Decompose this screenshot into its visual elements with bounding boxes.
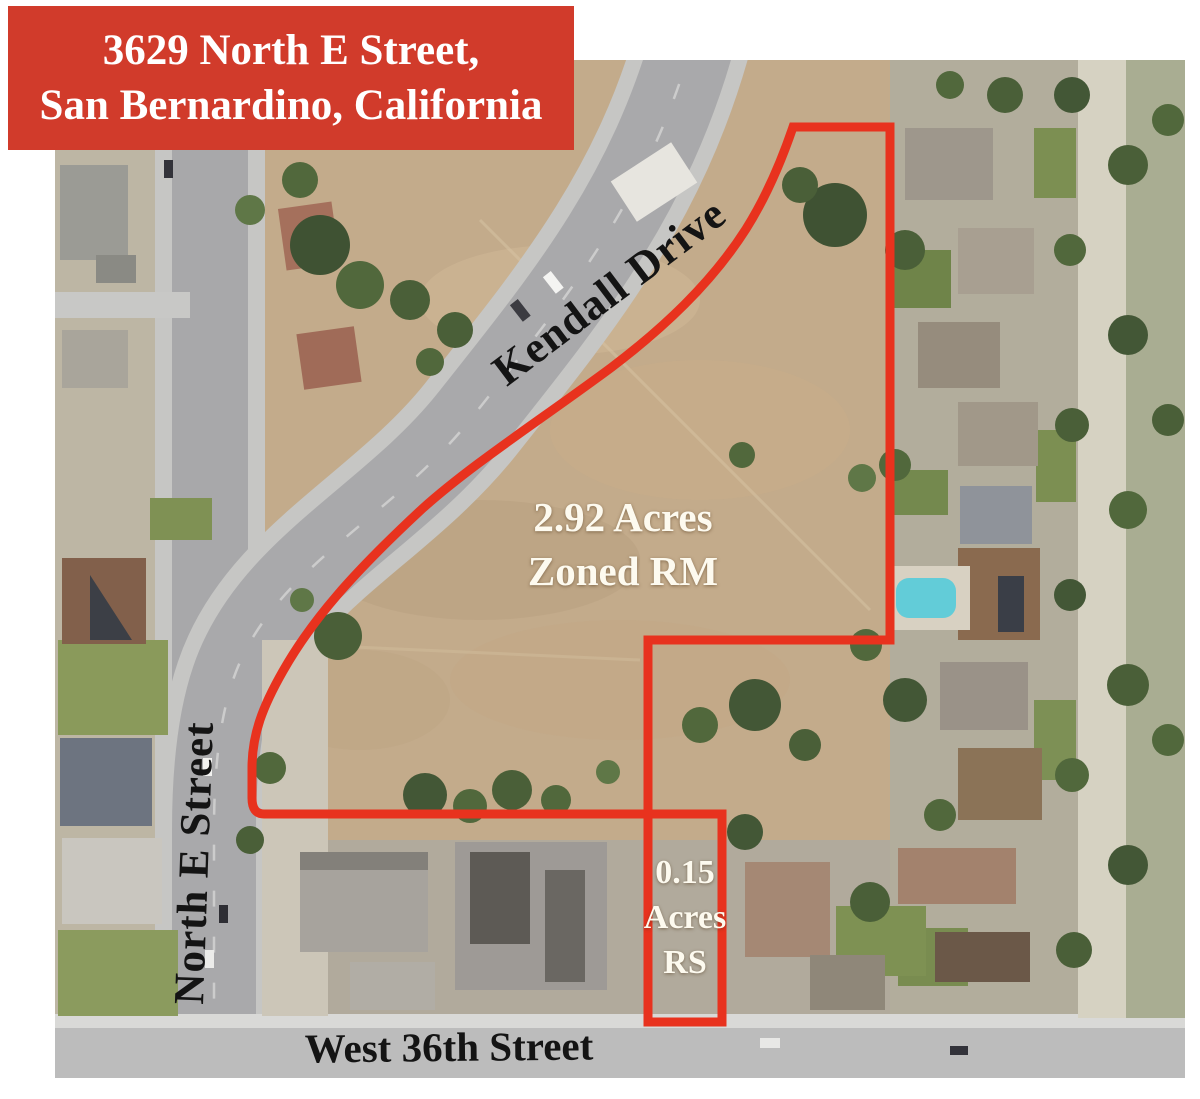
page: Kendall Drive North E Street West 36th S…: [0, 0, 1200, 1099]
small-parcel-zoning: RS: [620, 940, 750, 985]
title-box: 3629 North E Street, San Bernardino, Cal…: [8, 6, 574, 150]
small-parcel-acreage-unit: Acres: [620, 895, 750, 940]
small-parcel-label: 0.15 Acres RS: [620, 850, 750, 985]
title-line-2: San Bernardino, California: [40, 78, 543, 133]
cross-street: [55, 292, 190, 318]
swimming-pool: [886, 566, 970, 630]
main-parcel-label: 2.92 Acres Zoned RM: [453, 490, 793, 598]
main-parcel-acreage: 2.92 Acres: [453, 490, 793, 544]
west-36th-street-label: West 36th Street: [269, 1021, 629, 1073]
title-line-1: 3629 North E Street,: [103, 23, 480, 78]
north-e-street-label: North E Street: [165, 707, 228, 1019]
main-parcel-zoning: Zoned RM: [453, 544, 793, 598]
small-parcel-acreage-value: 0.15: [620, 850, 750, 895]
